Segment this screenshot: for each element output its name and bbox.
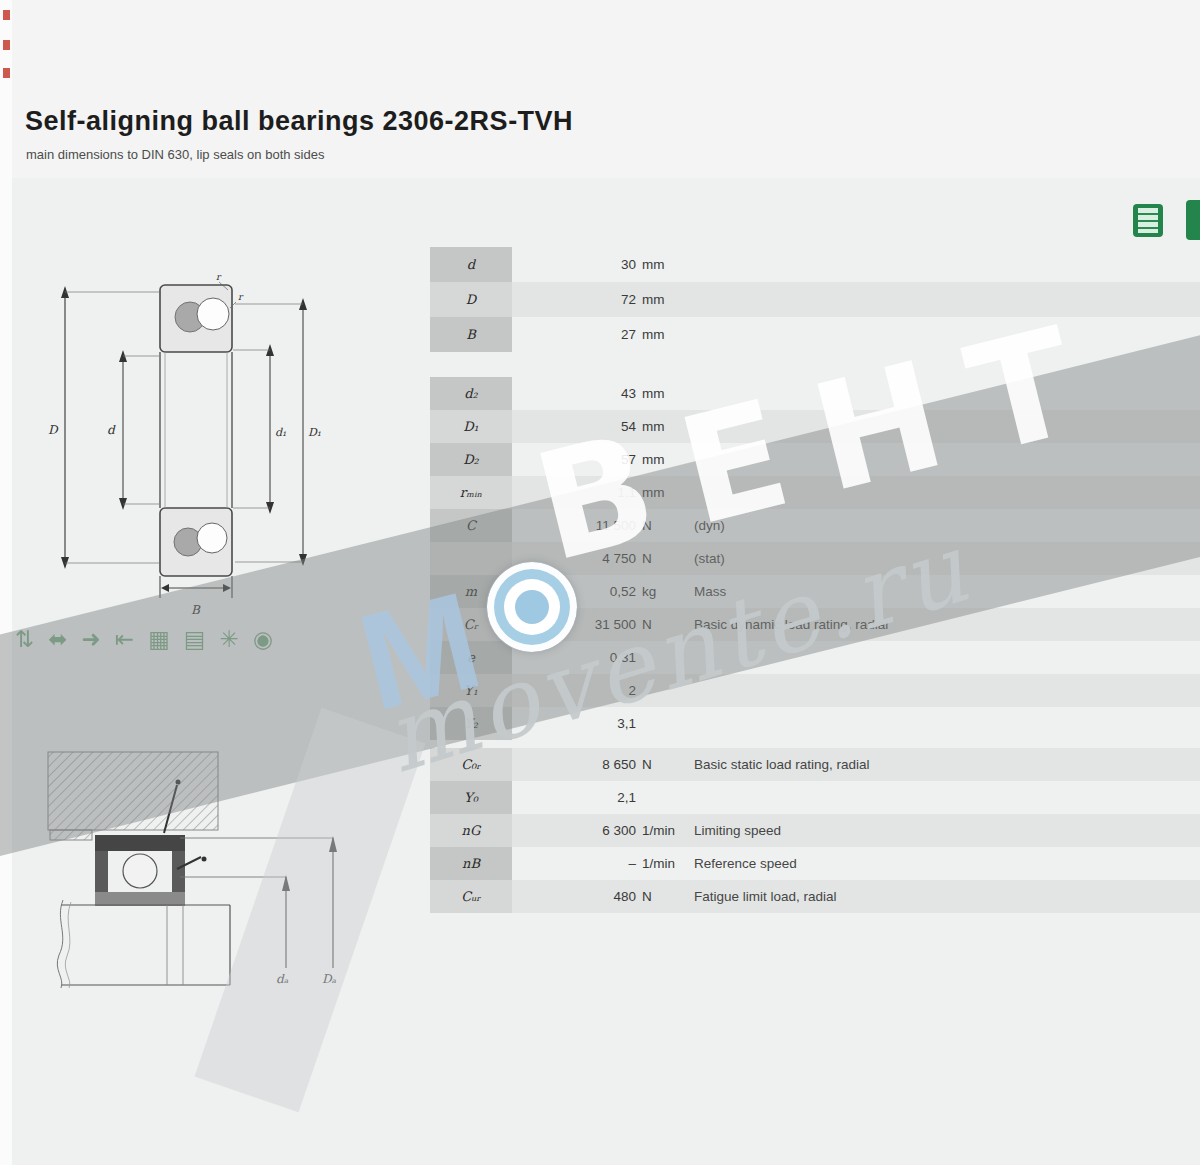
- feature-icon: ▦: [148, 626, 170, 653]
- row-value: 6 300: [512, 823, 642, 838]
- table-row: C₀ᵣ8 650NBasic static load rating, radia…: [430, 748, 1200, 781]
- table-row: d30mm: [430, 247, 1200, 282]
- row-unit: 1/min: [642, 856, 694, 871]
- left-edge-red-mark: [3, 40, 10, 50]
- row-value: 480: [512, 889, 642, 904]
- left-edge-red-mark: [3, 68, 10, 78]
- row-description: Mass: [694, 584, 1200, 599]
- row-value: 8 650: [512, 757, 642, 772]
- row-symbol: e: [430, 650, 512, 665]
- row-unit: N: [642, 551, 694, 566]
- row-symbol: Y₂: [430, 716, 512, 731]
- row-symbol: Y₀: [430, 790, 512, 805]
- row-symbol: Cᵤᵣ: [430, 880, 512, 913]
- row-symbol: C₀ᵣ: [430, 748, 512, 781]
- row-symbol: Cᵣ: [430, 608, 512, 641]
- page-subtitle: main dimensions to DIN 630, lip seals on…: [26, 147, 324, 162]
- feature-icon: ➜: [82, 626, 101, 653]
- row-value: 54: [512, 419, 642, 434]
- table-row: Y₂3,1: [430, 707, 1200, 740]
- row-description: Basic dynamic load rating, radial: [694, 617, 1200, 632]
- table-row: 4 750N(stat): [430, 542, 1200, 575]
- row-symbol: d₂: [430, 386, 512, 401]
- row-value: 0,52: [512, 584, 642, 599]
- bearing-cross-section-drawing: B D d d₁ D₁ r r: [20, 270, 340, 620]
- row-value: 27: [512, 327, 642, 342]
- table-row: m0,52kgMass: [430, 575, 1200, 608]
- row-unit: mm: [642, 292, 694, 307]
- feature-icon: ✳: [220, 626, 239, 653]
- table-row: C11 500N(dyn): [430, 509, 1200, 542]
- table-row: e0,31: [430, 641, 1200, 674]
- row-symbol: rₘᵢₙ: [430, 476, 512, 509]
- row-value: 0,31: [512, 650, 642, 665]
- row-symbol: m: [430, 584, 512, 599]
- dim-label-d1: d₁: [275, 426, 286, 439]
- row-unit: kg: [642, 584, 694, 599]
- row-unit: 1/min: [642, 823, 694, 838]
- feature-icon: ⇅: [15, 626, 34, 653]
- row-value: 4 750: [512, 551, 642, 566]
- row-value: 43: [512, 386, 642, 401]
- feature-icon: ⬌: [48, 626, 67, 653]
- table-row: Cᵤᵣ480NFatigue limit load, radial: [430, 880, 1200, 913]
- row-unit: N: [642, 889, 694, 904]
- row-value: –: [512, 856, 642, 871]
- table-row: d₂43mm: [430, 377, 1200, 410]
- dim-label-B: B: [191, 603, 201, 617]
- feature-icon: ▤: [184, 626, 206, 653]
- table-row: D72mm: [430, 282, 1200, 317]
- dim-label-da: dₐ: [276, 972, 289, 986]
- row-value: 2,1: [512, 790, 642, 805]
- feature-icon-row: ⇅ ⬌ ➜ ⇤ ▦ ▤ ✳ ◉: [15, 626, 273, 653]
- bearing-mounting-drawing: Dₐ dₐ: [25, 740, 375, 1010]
- row-value: 2: [512, 683, 642, 698]
- row-value: 72: [512, 292, 642, 307]
- row-symbol: D₂: [430, 452, 512, 467]
- table-row: D₂57mm: [430, 443, 1200, 476]
- table-row: Y₁2: [430, 674, 1200, 707]
- table-row: Y₀2,1: [430, 781, 1200, 814]
- dim-label-D: D: [48, 423, 59, 437]
- dim-label-r-top: r: [216, 272, 222, 282]
- row-description: Reference speed: [694, 856, 1200, 871]
- dim-label-D1: D₁: [308, 426, 321, 439]
- row-unit: mm: [642, 485, 694, 500]
- row-value: 57: [512, 452, 642, 467]
- row-symbol: Y₁: [430, 674, 512, 707]
- table-row: Cᵣ31 500NBasic dynamic load rating, radi…: [430, 608, 1200, 641]
- feature-icon: ◉: [253, 626, 273, 653]
- row-symbol: nB: [430, 856, 512, 871]
- row-unit: mm: [642, 419, 694, 434]
- table-row: nB–1/minReference speed: [430, 847, 1200, 880]
- row-description: (dyn): [694, 518, 1200, 533]
- table-row: rₘᵢₙ1,1mm: [430, 476, 1200, 509]
- row-symbol: [430, 542, 512, 575]
- table-row: B27mm: [430, 317, 1200, 352]
- row-value: 11 500: [512, 518, 642, 533]
- row-unit: N: [642, 617, 694, 632]
- row-symbol: B: [430, 327, 512, 342]
- specification-table: d30mmD72mmB27mmd₂43mmD₁54mmD₂57mmrₘᵢₙ1,1…: [430, 0, 1200, 1000]
- row-unit: mm: [642, 452, 694, 467]
- row-value: 3,1: [512, 716, 642, 731]
- left-edge-strip: [0, 0, 12, 1165]
- row-description: Basic static load rating, radial: [694, 757, 1200, 772]
- feature-icon: ⇤: [115, 626, 134, 653]
- dim-label-d: d: [107, 423, 116, 437]
- row-symbol: D: [430, 282, 512, 317]
- row-unit: N: [642, 518, 694, 533]
- row-unit: mm: [642, 327, 694, 342]
- row-symbol: D₁: [430, 410, 512, 443]
- row-value: 1,1: [512, 485, 642, 500]
- table-row: nG6 3001/minLimiting speed: [430, 814, 1200, 847]
- row-symbol: d: [430, 257, 512, 272]
- row-symbol: C: [430, 518, 512, 533]
- row-description: Fatigue limit load, radial: [694, 889, 1200, 904]
- row-unit: mm: [642, 257, 694, 272]
- row-value: 30: [512, 257, 642, 272]
- row-symbol: nG: [430, 814, 512, 847]
- dim-label-r-side: r: [238, 292, 244, 302]
- row-unit: mm: [642, 386, 694, 401]
- row-description: Limiting speed: [694, 823, 1200, 838]
- left-edge-red-mark: [3, 10, 10, 20]
- row-unit: N: [642, 757, 694, 772]
- dim-label-Da: Dₐ: [322, 972, 337, 986]
- row-description: (stat): [694, 551, 1200, 566]
- table-row: D₁54mm: [430, 410, 1200, 443]
- row-value: 31 500: [512, 617, 642, 632]
